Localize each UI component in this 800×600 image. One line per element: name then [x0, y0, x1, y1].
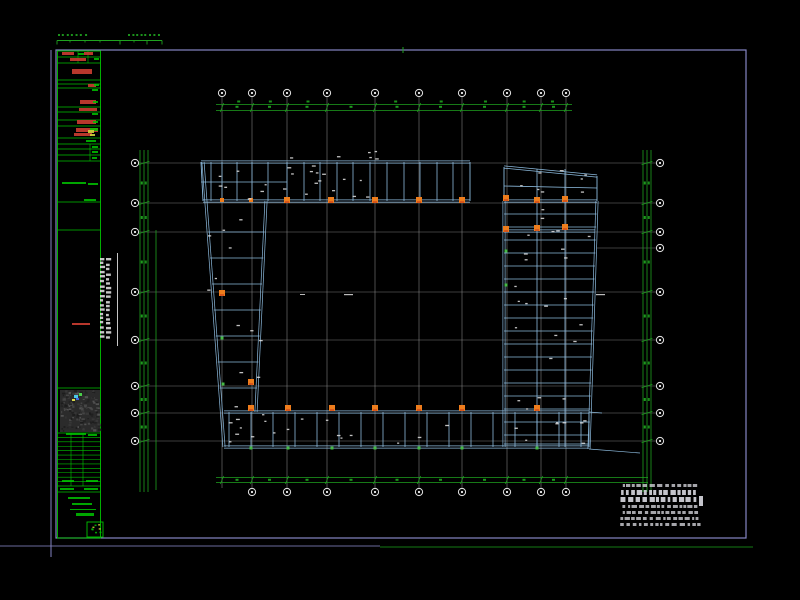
cad-canvas — [0, 0, 800, 600]
dimension-lines — [139, 101, 653, 493]
column-markers — [219, 195, 568, 450]
notes-block — [620, 484, 703, 526]
cad-viewport[interactable] — [0, 0, 800, 600]
key-plan-thumbnail — [60, 390, 101, 432]
title-block — [58, 51, 104, 538]
drawing-title-vertical — [100, 253, 118, 346]
sheet-frame — [0, 47, 753, 557]
top-ruler — [57, 34, 162, 45]
beam-labels — [207, 151, 590, 444]
